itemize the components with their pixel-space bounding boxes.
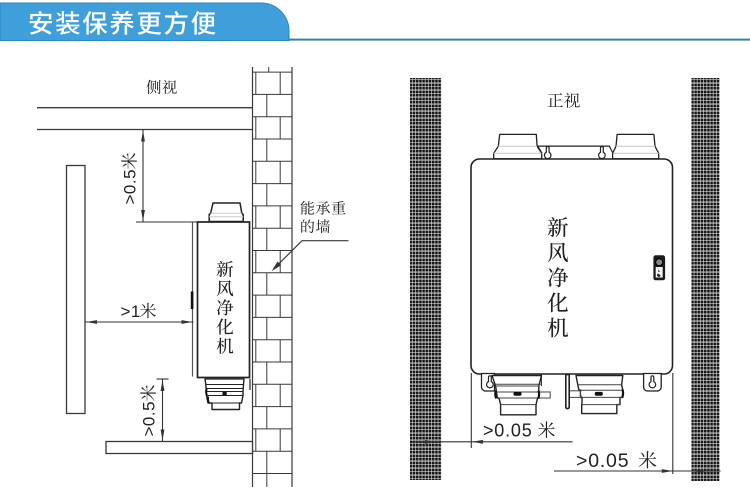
svg-text:>0.5: >0.5 <box>121 169 140 205</box>
svg-text:>0.5: >0.5 <box>140 401 159 437</box>
svg-text:>0.05: >0.05 <box>483 421 533 441</box>
svg-text:>0.05: >0.05 <box>576 450 629 472</box>
svg-text:>1: >1 <box>121 302 141 321</box>
